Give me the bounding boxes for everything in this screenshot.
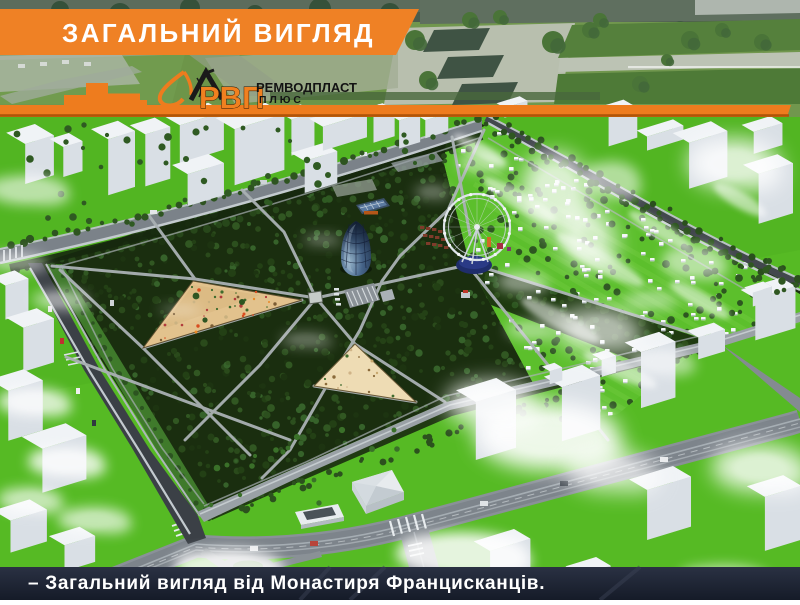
svg-text:РЕМВОДПЛАСТ: РЕМВОДПЛАСТ [256, 80, 357, 95]
svg-text:ЗАГАЛЬНИЙ ВИГЛЯД: ЗАГАЛЬНИЙ ВИГЛЯД [62, 18, 375, 48]
svg-text:– Загальний вигляд від Монасти: – Загальний вигляд від Монастиря Францис… [28, 573, 545, 594]
svg-text:РВП: РВП [199, 80, 264, 115]
svg-text:ПЛЮС: ПЛЮС [259, 95, 304, 106]
